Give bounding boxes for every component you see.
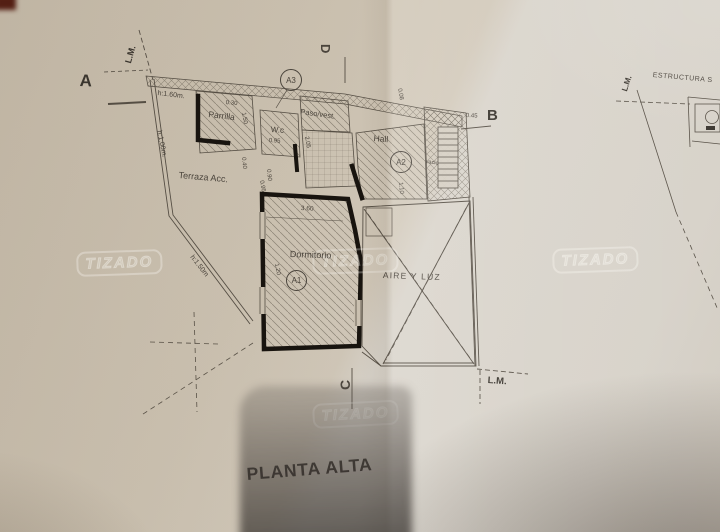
plan-photo: TIZADO TIZADO TIZADO TIZADO L.M. A h:1.6… <box>0 0 720 532</box>
section-mark-b: B <box>487 108 498 123</box>
structure-fragment <box>616 90 720 310</box>
dim-040: 0.40 <box>240 157 247 169</box>
section-mark-a: A <box>79 72 92 89</box>
dim-090: 0.90 <box>265 169 272 181</box>
label-hall: Hall <box>373 134 388 144</box>
watermark: TIZADO <box>552 246 639 274</box>
dim-b-offset: 0.45 <box>466 113 478 120</box>
projection-lines <box>140 312 253 416</box>
tag-a2: A2 <box>390 151 412 173</box>
dim-110: 1.10 <box>397 182 404 194</box>
ladder <box>438 127 458 188</box>
lm-bottom-label: L.M. <box>487 376 507 387</box>
dim-wc-width: 0.95 <box>269 138 281 145</box>
section-mark-d: D <box>319 44 332 53</box>
watermark: TIZADO <box>76 249 163 277</box>
tag-a3: A3 <box>280 69 302 91</box>
stairs <box>302 130 356 188</box>
dim-dorm-width: 3.60 <box>301 206 314 213</box>
tag-a2-label: A2 <box>396 158 406 167</box>
tag-a1-label: A1 <box>292 276 302 285</box>
courtyard <box>362 201 476 366</box>
tag-a3-label: A3 <box>286 76 296 85</box>
label-dormitorio: Dormitorio <box>290 250 332 260</box>
dim-parrilla-width: 0.30 <box>225 100 237 107</box>
label-aire-y-luz: AIRE Y LUZ <box>383 271 441 282</box>
tag-a1: A1 <box>286 270 307 291</box>
corner-red-spot <box>0 0 16 10</box>
label-wc: W.c <box>270 126 284 135</box>
phone-shadow <box>240 386 412 532</box>
upper-rooms <box>196 91 470 201</box>
